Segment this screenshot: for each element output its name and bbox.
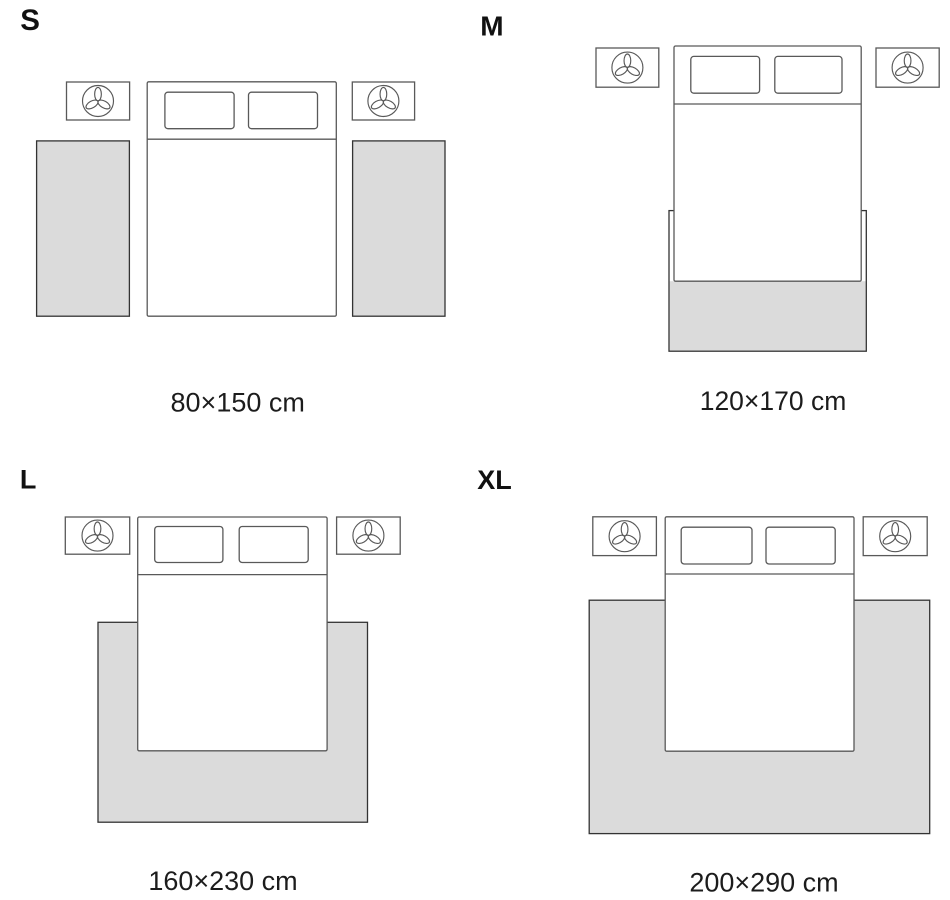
svg-text:120×170 cm: 120×170 cm bbox=[700, 386, 847, 416]
svg-text:S: S bbox=[20, 4, 40, 37]
svg-text:80×150 cm: 80×150 cm bbox=[171, 388, 305, 418]
svg-text:M: M bbox=[480, 11, 503, 42]
svg-text:200×290 cm: 200×290 cm bbox=[689, 868, 838, 898]
svg-text:160×230 cm: 160×230 cm bbox=[148, 866, 297, 896]
svg-text:XL: XL bbox=[477, 465, 512, 495]
svg-text:L: L bbox=[20, 465, 37, 495]
